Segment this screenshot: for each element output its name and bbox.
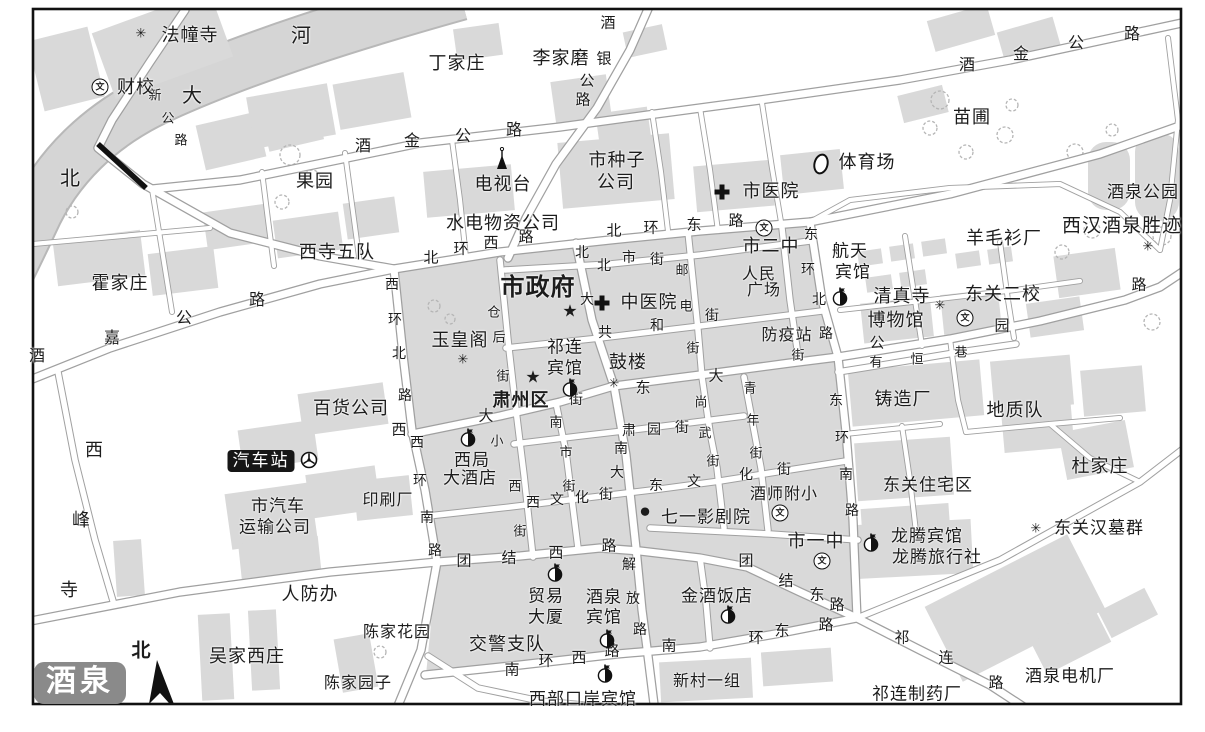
map-canvas <box>0 0 1205 732</box>
jiuquan-city-map[interactable]: 酒泉 北 酒金公路酒金公路酒银公路新公路酒嘉公路北环西路北环东路北市街共和街东大… <box>0 0 1205 732</box>
